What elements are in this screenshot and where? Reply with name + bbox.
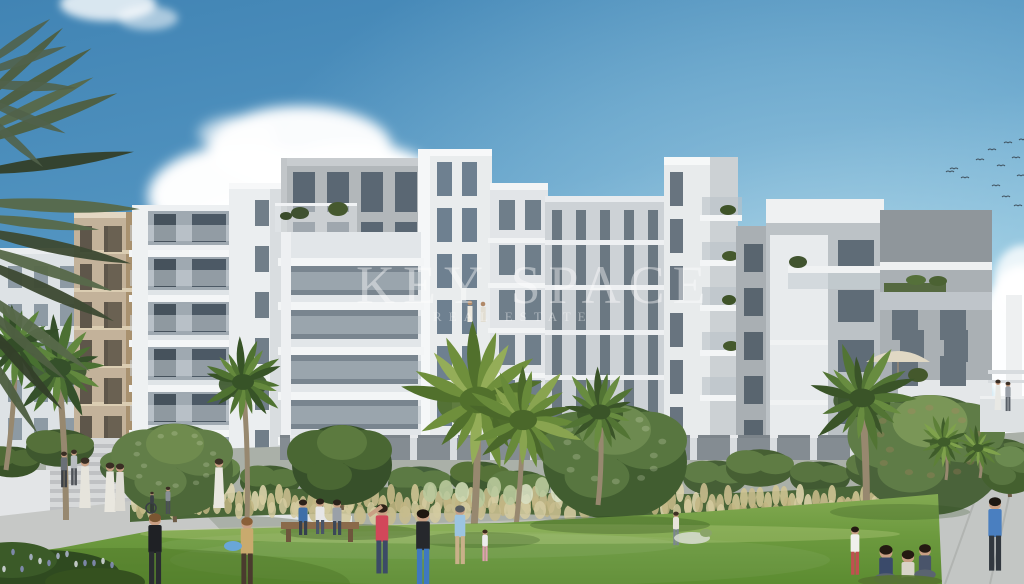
svg-text:KEY SPACE: KEY SPACE bbox=[356, 255, 714, 315]
svg-text:REAL ESTATE: REAL ESTATE bbox=[433, 309, 593, 324]
